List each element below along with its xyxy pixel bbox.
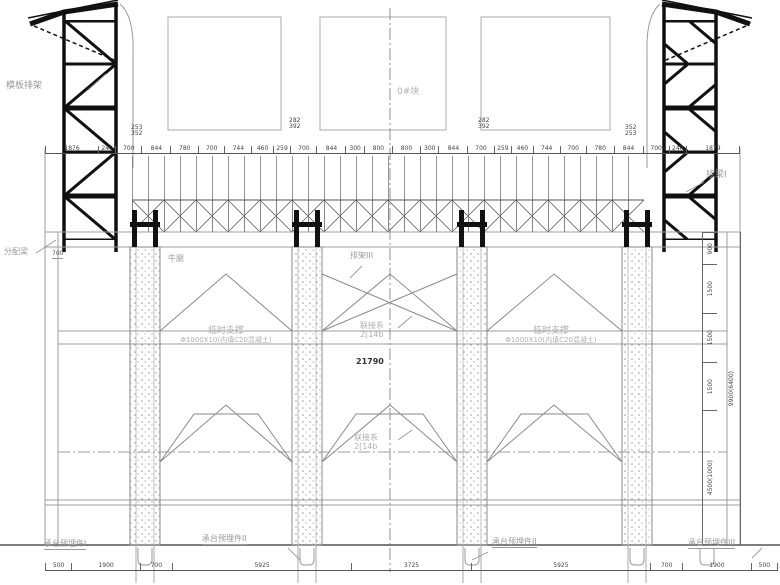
dimension-value: 700	[290, 146, 316, 153]
dimension-value: 460	[251, 146, 272, 153]
stacked-dims-3: 282392	[478, 118, 489, 131]
dimension-value: 460	[511, 146, 532, 153]
stacked-dims-4: 352253	[625, 125, 636, 138]
center-width-dimension: 21790	[356, 358, 384, 367]
embed-plate-2-label: 承台预埋件II	[202, 535, 247, 545]
dimension-value: 1900	[71, 563, 140, 570]
bracing-low-label: 联接系 2[14b	[354, 434, 378, 452]
embed-plate-3-label: 承台预埋件III	[688, 539, 735, 549]
dimension-value: 744	[533, 146, 560, 153]
temp-support-spec: Φ1000X10(内填C20混凝土)	[490, 337, 612, 345]
dimension-value: 744	[224, 146, 251, 153]
dimension-value: 3725	[351, 563, 470, 570]
dimension-value: 1900	[682, 563, 751, 570]
temp-support-left-label: 临时支撑 Φ1000X10(内填C20混凝土)	[165, 327, 287, 345]
right-total-dimension: 9900(6400)	[722, 232, 741, 545]
top-dimension-chain: 1876240700844780700744460259700844300800…	[45, 139, 740, 154]
bottom-dimension-chain: 50019007005925372559257001900500	[45, 556, 778, 571]
dimension-value: 5925	[471, 563, 651, 570]
dimension-value: 1879	[686, 146, 740, 153]
dimension-value: 300	[420, 146, 438, 153]
dimension-value: 700	[467, 146, 493, 153]
dimension-value: 780	[170, 146, 198, 153]
dimension-value: 240	[98, 146, 115, 153]
dimension-value: 259	[273, 146, 291, 153]
dimension-value: 700	[560, 146, 586, 153]
stacked-dims-2: 282392	[289, 118, 300, 131]
dimension-value: 700	[198, 146, 224, 153]
dimension-value: 1500	[703, 362, 717, 411]
right-truss-tower	[647, 0, 752, 252]
hanger-rods-band	[132, 156, 644, 232]
dimension-value: 1500	[703, 313, 717, 362]
dimension-value: 900	[703, 232, 717, 264]
dimension-value: 5925	[172, 563, 352, 570]
dimension-value: 700	[140, 563, 172, 570]
right-dimension-chain: 9001500150015004500(1000)	[702, 232, 717, 545]
embed-plate-2b-label: 承台预埋件II	[492, 538, 537, 548]
dimension-value: 500	[45, 563, 71, 570]
corbel-dim-label: 700	[52, 251, 63, 259]
dimension-value: 300	[345, 146, 363, 153]
temp-support-right-label: 临时支撑 Φ1000X10(内填C20混凝土)	[490, 327, 612, 345]
dimension-value: 700	[650, 563, 682, 570]
dimension-value: 1500	[703, 264, 717, 313]
dimension-value: 240	[669, 146, 686, 153]
left-truss-tower	[28, 0, 133, 252]
bracing-spec: 2[14b	[354, 443, 378, 452]
dimension-value: 844	[316, 146, 345, 153]
hanging-beam-label: 挂梁I	[706, 171, 727, 181]
dimension-value: 9900(6400)	[728, 371, 735, 406]
dimension-value: 800	[392, 146, 420, 153]
support-columns	[130, 247, 652, 583]
dimension-value: 500	[751, 563, 778, 570]
engineering-drawing-canvas: 1876240700844780700744460259700844300800…	[0, 0, 780, 585]
dimension-value: 844	[614, 146, 643, 153]
dimension-value: 700	[643, 146, 669, 153]
bracing-spec: 2[14b	[360, 331, 384, 340]
embed-plate-1-label: 承台预埋件I	[44, 540, 86, 550]
dimension-value: 4500(1000)	[703, 410, 717, 545]
distribution-beam-label: 分配梁	[4, 248, 28, 257]
stacked-dims-1: 253352	[131, 125, 142, 138]
segment-boxes	[168, 17, 610, 130]
dimension-value: 844	[141, 146, 170, 153]
dimension-value: 700	[115, 146, 141, 153]
frame-iii-label: 排架III	[350, 252, 373, 261]
corbel-label: 牛腿	[168, 255, 184, 264]
dimension-value: 780	[586, 146, 614, 153]
dimension-value: 844	[438, 146, 467, 153]
temp-support-spec: Φ1000X10(内填C20混凝土)	[165, 337, 287, 345]
dimension-value: 259	[494, 146, 512, 153]
bracing-mid-label: 联接系 2[14b	[360, 322, 384, 340]
drawing-linework	[0, 0, 780, 585]
left-tower-label: 模板排架	[6, 82, 42, 92]
dimension-value: 1876	[45, 146, 98, 153]
bay-bracing	[160, 274, 622, 462]
segment-block-label: 0#块	[397, 88, 419, 98]
dimension-value: 800	[364, 146, 392, 153]
